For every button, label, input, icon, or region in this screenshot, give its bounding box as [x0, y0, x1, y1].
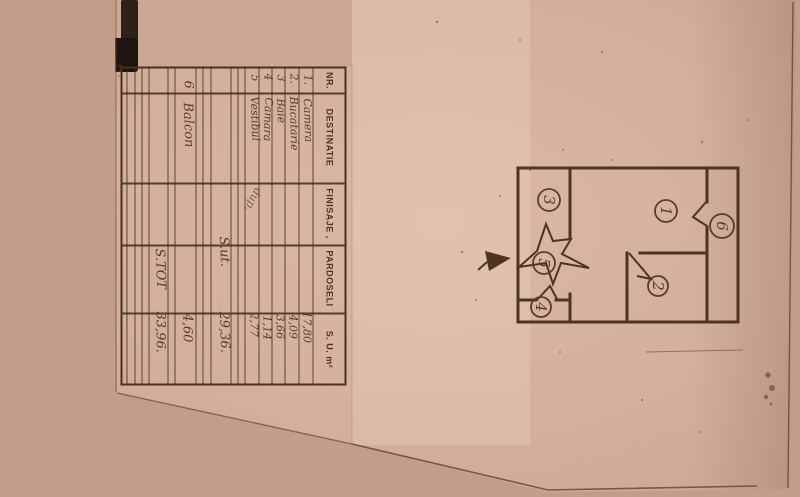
room2-door-icon — [629, 253, 651, 279]
plan-walls — [518, 168, 738, 322]
floor-plan-drawing: 3 1 6 5 4 2 — [0, 0, 800, 497]
page-edge-lines — [116, 0, 793, 490]
scanned-floorplan-document: NR. DESTINATIE FINISAJE , PARDOSELI S. U… — [0, 0, 800, 497]
room-4-label: 4 — [532, 301, 550, 312]
room-5-label: 5 — [535, 258, 553, 268]
room-1-label: 1 — [657, 206, 675, 216]
room-2-label: 2 — [649, 280, 667, 291]
entrance-arrow-icon — [478, 251, 511, 271]
room-6-label: 6 — [713, 221, 731, 231]
balcony-door-icon — [693, 201, 707, 226]
room-3-label: 3 — [540, 195, 558, 205]
vestibule-door-star-icon — [519, 224, 589, 284]
door-symbols — [519, 201, 707, 300]
